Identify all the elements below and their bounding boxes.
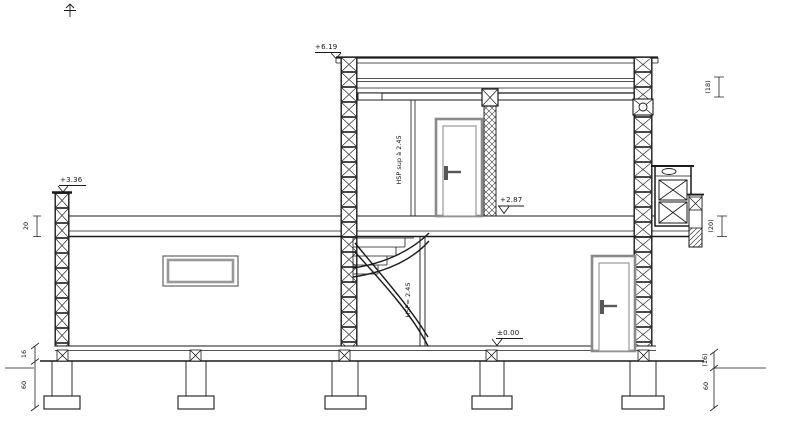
- dim-left-footing: 60: [17, 373, 31, 397]
- chimney: [651, 166, 704, 247]
- dim-right-floor: (16): [698, 346, 712, 374]
- section-linework: [0, 0, 800, 443]
- room-height-upper: HSP sup à 2.45: [393, 128, 405, 192]
- staircase: [353, 233, 429, 346]
- upper-door: [436, 119, 482, 216]
- level-right-roof: +6.19: [315, 44, 337, 51]
- ring-beam-icon: [633, 99, 653, 115]
- floor-beam-boxes: [57, 350, 649, 361]
- dim-left-slab: 20: [19, 214, 33, 238]
- dim-right-slab: (20): [704, 212, 718, 240]
- level-upper-floor: +2.87: [500, 197, 522, 204]
- upper-partition: [482, 89, 498, 216]
- garage-window: [163, 256, 238, 286]
- level-left-roof: +3.36: [60, 177, 82, 184]
- section-drawing-canvas: +6.19 +3.36 +2.87 ±0.00 HSP sup à 2.45 H…: [0, 0, 800, 443]
- lower-door: [592, 256, 635, 351]
- foundations: [5, 361, 766, 409]
- dim-left-floor: 16: [17, 342, 31, 366]
- dim-right-footing: 60: [699, 372, 713, 400]
- mid-slab: [66, 216, 702, 237]
- room-height-ground: HSP= 2.45: [402, 276, 414, 324]
- benchmark-icon: [64, 4, 76, 17]
- level-ground-floor: ±0.00: [497, 330, 519, 337]
- dim-right-roof: (18): [701, 73, 715, 101]
